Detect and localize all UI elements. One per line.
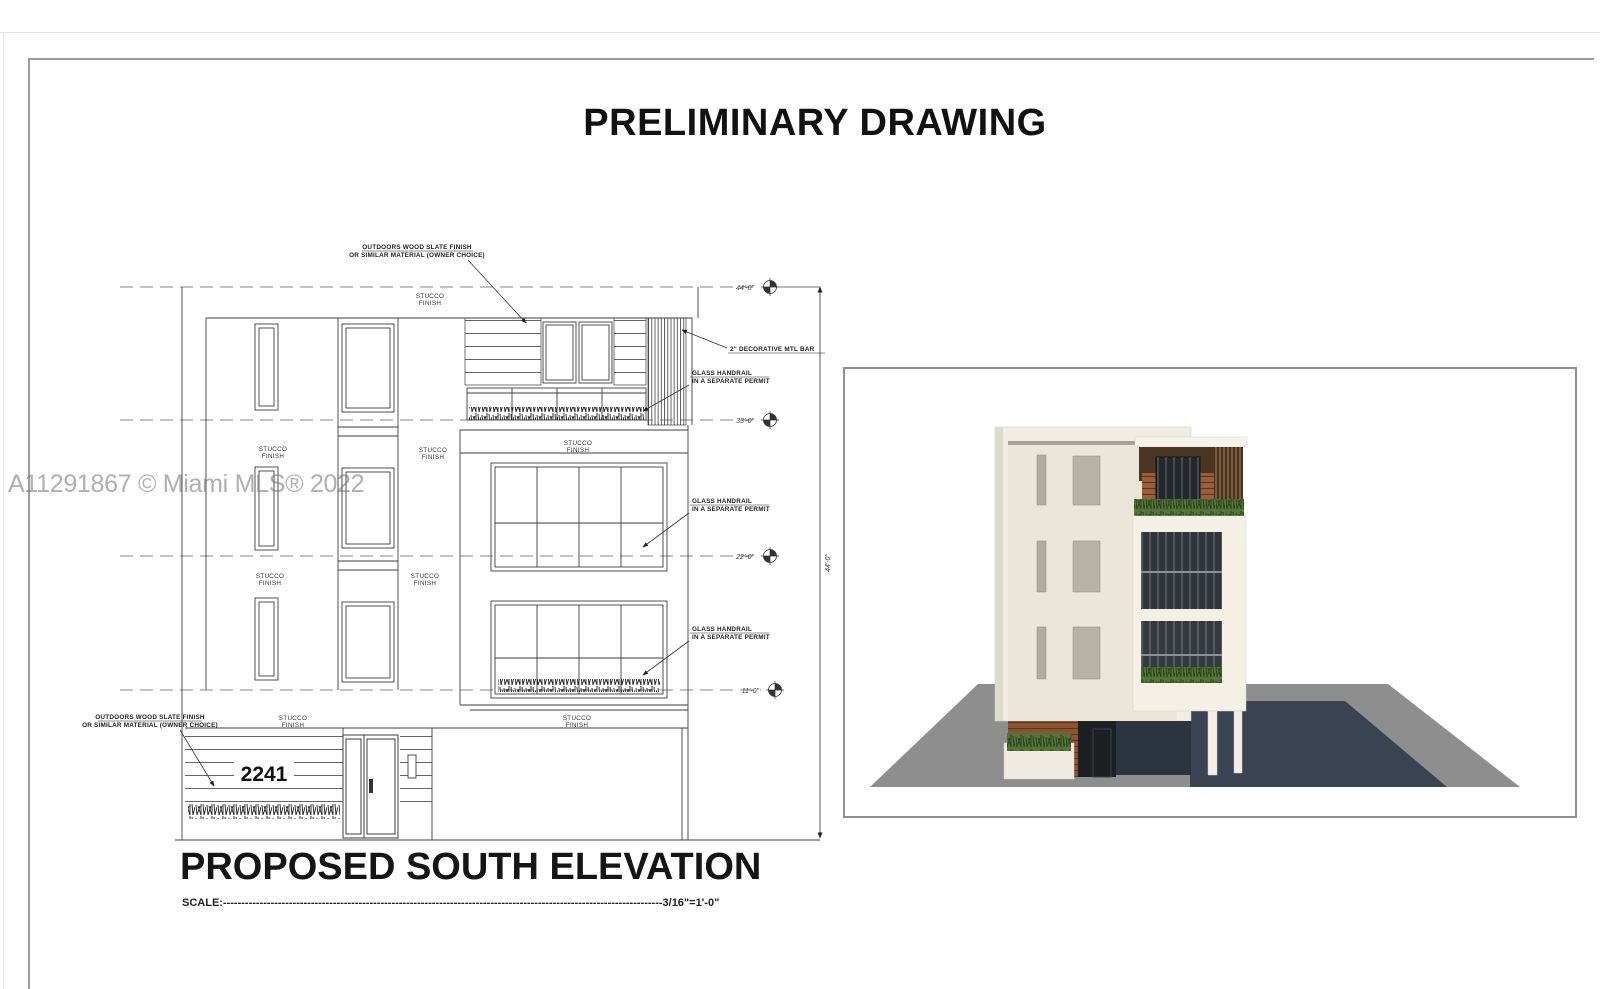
window-grid-lower [491,601,667,698]
south-elevation-drawing: 44'-0" 33'-0" 22'-0" 11'-0" 44'-0" [30,230,840,940]
roof-fascia [1135,437,1247,447]
svg-text:STUCCO: STUCCO [416,293,444,300]
svg-text:OR SIMILAR MATERIAL (OWNER CHO: OR SIMILAR MATERIAL (OWNER CHOICE) [349,252,485,259]
windows [255,322,612,682]
house-number: 2241 [241,763,288,786]
pillar [1234,711,1242,773]
slat-hatching [185,318,686,807]
dim-level-44: 44'-0" [736,285,754,292]
scale-line: SCALE:----------------------------------… [182,897,740,909]
svg-text:STUCCO: STUCCO [259,446,287,453]
svg-text:FINISH: FINISH [566,722,589,729]
planting-row [188,804,340,819]
svg-text:STUCCO: STUCCO [256,573,284,580]
svg-text:OR SIMILAR MATERIAL (OWNER CHO: OR SIMILAR MATERIAL (OWNER CHOICE) [82,722,218,729]
svg-text:FINISH: FINISH [419,300,442,307]
page-title: PRELIMINARY DRAWING [560,102,1070,145]
svg-text:2" DECORATIVE MTL BAR: 2" DECORATIVE MTL BAR [730,346,815,353]
mls-watermark: A11291867 © Miami MLS® 2022 [8,470,364,499]
planting-row [498,679,660,692]
entry-door [343,735,398,838]
annotation-wood-slate-top: OUTDOORS WOOD SLATE FINISH OR SIMILAR MA… [349,244,526,323]
svg-text:FINISH: FINISH [259,580,282,587]
door-handle [369,779,373,793]
svg-text:GLASS HANDRAIL: GLASS HANDRAIL [692,370,752,377]
side-face [995,427,1003,721]
svg-text:FINISH: FINISH [567,447,590,454]
window-grid-upper [491,463,667,571]
planting-row [469,407,644,420]
svg-text:OUTDOORS WOOD SLATE FINISH: OUTDOORS WOOD SLATE FINISH [95,714,205,721]
dim-level-22: 22'-0" [735,554,754,561]
svg-text:STUCCO: STUCCO [564,440,592,447]
svg-text:FINISH: FINISH [262,453,285,460]
dim-level-33: 33'-0" [736,418,754,425]
annotation-handrail-3: GLASS HANDRAIL IN A SEPARATE PERMIT [643,626,770,675]
dim-overall-height: 44'-0" [825,554,832,572]
wall-sconce [408,755,416,778]
svg-text:GLASS HANDRAIL: GLASS HANDRAIL [692,626,752,633]
pillar [1208,711,1217,775]
svg-text:OUTDOORS WOOD SLATE FINISH: OUTDOORS WOOD SLATE FINISH [362,244,472,251]
annotation-mtl-bar: 2" DECORATIVE MTL BAR [682,330,825,353]
decorative-mtl-bars [648,318,686,425]
undercroft [1116,721,1191,775]
overall-dimension: 44'-0" [820,287,832,838]
svg-text:FINISH: FINISH [282,722,305,729]
svg-text:FINISH: FINISH [414,580,437,587]
dim-level-11: 11'-0" [742,688,760,695]
svg-text:IN A SEPARATE PERMIT: IN A SEPARATE PERMIT [692,634,770,641]
svg-text:GLASS HANDRAIL: GLASS HANDRAIL [692,498,752,505]
sheet-frame-top [28,58,1594,60]
render-panel [843,367,1577,818]
svg-text:STUCCO: STUCCO [419,447,447,454]
annotation-handrail-2: GLASS HANDRAIL IN A SEPARATE PERMIT [643,498,770,547]
svg-text:STUCCO: STUCCO [563,715,591,722]
svg-text:IN A SEPARATE PERMIT: IN A SEPARATE PERMIT [692,506,770,513]
balcony-slab [1141,609,1222,621]
photo-edge-top [0,32,1600,33]
render-image [845,369,1573,814]
stucco-labels: STUCCOFINISH STUCCOFINISH STUCCOFINISH S… [256,293,592,729]
svg-text:FINISH: FINISH [422,454,445,461]
glass-handrail-top [467,388,646,420]
drawing-sheet: PRELIMINARY DRAWING A11291867 © Miami ML… [0,0,1600,989]
svg-text:STUCCO: STUCCO [411,573,439,580]
svg-text:STUCCO: STUCCO [279,715,307,722]
elevation-title: PROPOSED SOUTH ELEVATION [180,846,761,889]
photo-edge-left [3,32,4,989]
svg-text:IN A SEPARATE PERMIT: IN A SEPARATE PERMIT [692,378,770,385]
